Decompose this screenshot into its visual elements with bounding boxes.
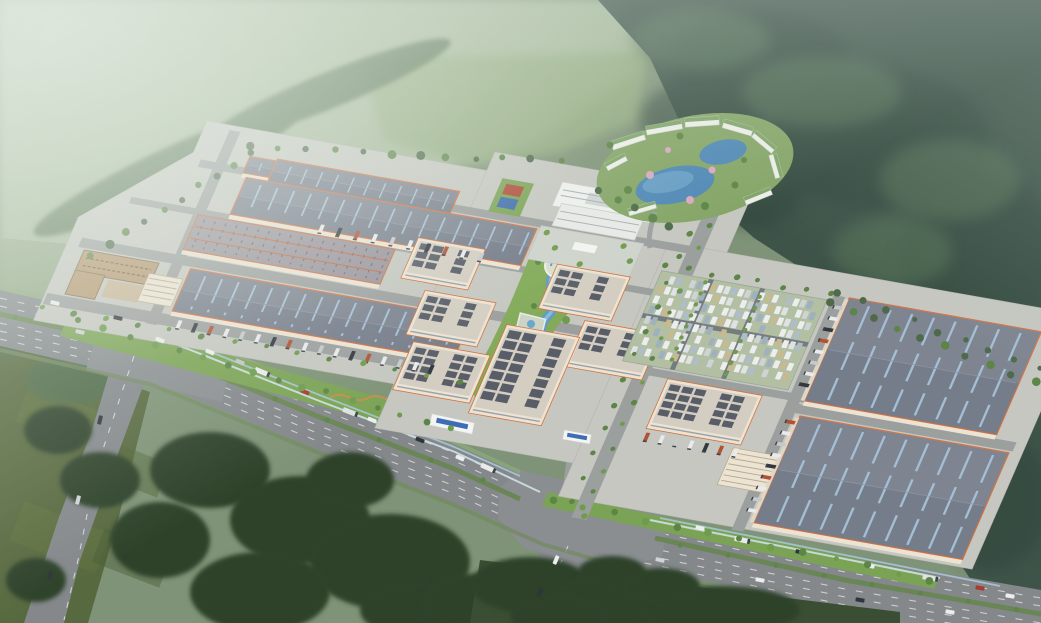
aerial-rendering — [0, 0, 1041, 623]
haze-corner-glow — [0, 0, 1041, 623]
